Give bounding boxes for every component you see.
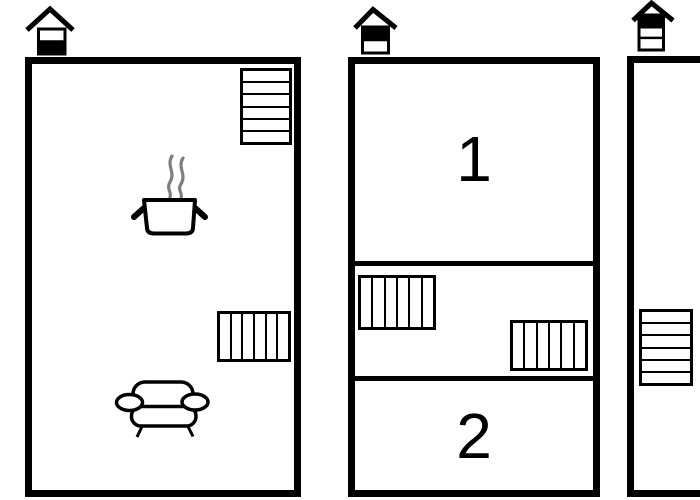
radiator-fin — [243, 81, 289, 93]
storey-number-label: 1 — [456, 127, 492, 191]
radiator-fin — [408, 278, 420, 327]
between-floors-zone — [355, 266, 593, 376]
sofa-icon — [112, 378, 212, 440]
radiator-fin — [384, 278, 396, 327]
storey-1: 1 — [355, 64, 593, 261]
radiator-icon-horizontal — [240, 68, 292, 145]
radiator-icon-vertical — [358, 275, 436, 330]
sofa-leg-right — [188, 426, 194, 437]
radiator-fin — [560, 323, 572, 368]
radiator-fin — [265, 314, 277, 359]
pot-body — [144, 200, 195, 234]
pot-handle-right — [195, 208, 205, 217]
radiator-fin — [642, 359, 690, 371]
house-icon-left — [24, 5, 76, 55]
house-roof — [355, 10, 396, 29]
radiator-fin — [573, 323, 585, 368]
radiator-fin — [361, 278, 371, 327]
cooking-pot-icon — [128, 152, 210, 242]
sofa-armrest-right — [182, 394, 208, 410]
house-band-middle — [641, 27, 663, 38]
house-band-top — [40, 31, 64, 42]
house-icon-right — [629, 0, 675, 52]
radiator-fin — [536, 323, 548, 368]
radiator-fin — [371, 278, 383, 327]
steam-icon — [180, 158, 183, 198]
radiator-fin — [642, 322, 690, 334]
pot-handle-left — [134, 208, 144, 217]
house-icon-middle — [352, 5, 398, 55]
house-band-bottom — [364, 40, 387, 52]
radiator-fin — [642, 347, 690, 359]
radiator-icon-vertical — [217, 311, 291, 362]
house-band-bottom — [40, 42, 64, 53]
radiator-fin — [220, 314, 230, 359]
radiator-fin — [243, 118, 289, 130]
room-right — [627, 56, 700, 497]
house-band-top — [641, 17, 663, 28]
radiator-fin — [421, 278, 433, 327]
radiator-fin — [243, 106, 289, 118]
steam-icon — [169, 156, 172, 197]
storey-number-label: 2 — [456, 404, 492, 468]
house-band-top — [364, 29, 387, 41]
radiator-fin — [513, 323, 523, 368]
house-band-bottom — [641, 38, 663, 49]
radiator-fin — [243, 93, 289, 105]
radiator-fin — [253, 314, 265, 359]
radiator-icon-vertical — [510, 320, 588, 371]
room-middle: 1 2 — [348, 57, 600, 497]
radiator-fin — [523, 323, 535, 368]
radiator-fin — [243, 71, 289, 81]
radiator-icon-horizontal — [639, 309, 693, 386]
radiator-fin — [243, 130, 289, 142]
floorplan-diagram: 1 2 — [0, 0, 700, 500]
radiator-fin — [276, 314, 288, 359]
sofa-armrest-left — [117, 395, 143, 411]
room-left — [25, 57, 301, 497]
radiator-fin — [642, 371, 690, 383]
storey-2: 2 — [355, 381, 593, 490]
radiator-fin — [396, 278, 408, 327]
radiator-fin — [548, 323, 560, 368]
radiator-fin — [241, 314, 253, 359]
radiator-fin — [230, 314, 242, 359]
radiator-fin — [642, 312, 690, 322]
house-roof — [27, 9, 73, 30]
radiator-fin — [642, 334, 690, 346]
